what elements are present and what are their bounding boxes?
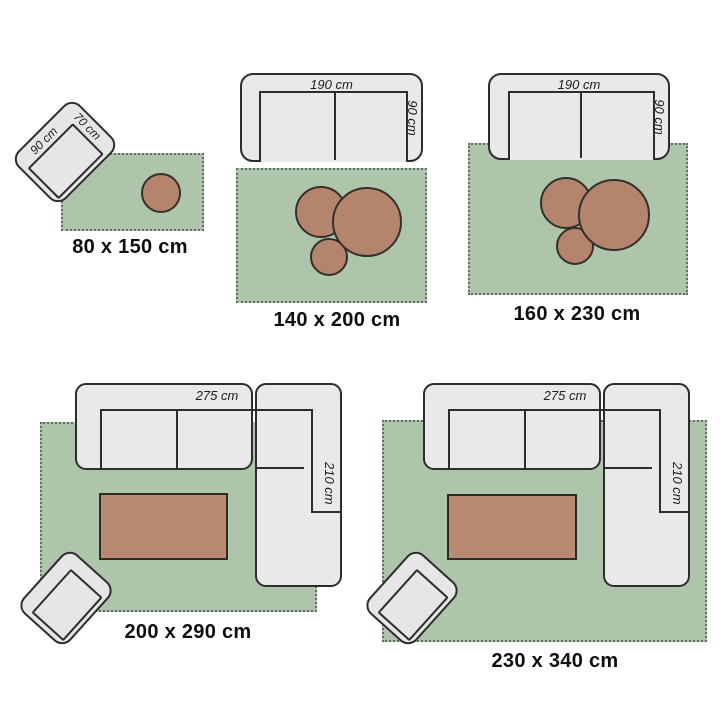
sofa-width-label: 190 cm bbox=[242, 77, 421, 92]
two-seat-sofa: 190 cm 90 cm bbox=[488, 73, 670, 160]
rug-size-guide: 90 cm 70 cm 80 x 150 cm 190 cm 90 cm 140… bbox=[0, 0, 720, 720]
sofa-width-label: 190 cm bbox=[490, 77, 668, 92]
sectional-backrest-line bbox=[448, 409, 661, 411]
sectional-corner-line bbox=[255, 467, 304, 469]
round-pouf bbox=[141, 173, 181, 213]
coffee-table bbox=[99, 493, 228, 560]
sectional-seat-divider bbox=[524, 409, 526, 470]
sectional-width-label: 275 cm bbox=[157, 388, 277, 403]
size-label-230x340: 230 x 340 cm bbox=[455, 650, 655, 673]
sofa-seat-divider bbox=[580, 91, 582, 158]
coffee-table bbox=[447, 494, 577, 560]
sectional-corner-line bbox=[603, 467, 652, 469]
sectional-seat-divider bbox=[176, 409, 178, 470]
sofa-depth-label: 90 cm bbox=[405, 100, 420, 135]
sectional-width-label: 275 cm bbox=[505, 388, 625, 403]
sectional-armrest-line-right bbox=[311, 409, 313, 513]
sofa-seat-divider bbox=[334, 91, 336, 160]
round-table-large bbox=[332, 187, 402, 257]
size-label-160x230: 160 x 230 cm bbox=[477, 303, 677, 326]
size-label-140x200: 140 x 200 cm bbox=[237, 309, 437, 332]
sectional-depth-label: 210 cm bbox=[665, 440, 685, 526]
two-seat-sofa: 190 cm 90 cm bbox=[240, 73, 423, 162]
size-label-200x290: 200 x 290 cm bbox=[88, 621, 288, 644]
round-table-large bbox=[578, 179, 650, 251]
size-label-80x150: 80 x 150 cm bbox=[40, 236, 220, 259]
sectional-depth-label: 210 cm bbox=[317, 440, 337, 526]
sectional-armrest-line-left bbox=[448, 409, 450, 470]
sectional-backrest-line bbox=[100, 409, 313, 411]
sofa-depth-label: 90 cm bbox=[652, 99, 667, 134]
sectional-armrest-line-right bbox=[659, 409, 661, 513]
sectional-armrest-line-left bbox=[100, 409, 102, 470]
